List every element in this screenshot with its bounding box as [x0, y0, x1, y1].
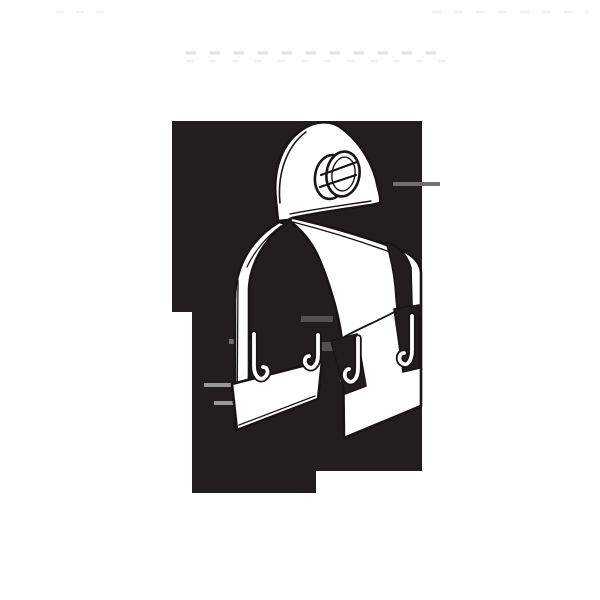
strut-clamp-drawing	[0, 0, 600, 600]
clamp-illustration-canvas	[0, 0, 600, 600]
